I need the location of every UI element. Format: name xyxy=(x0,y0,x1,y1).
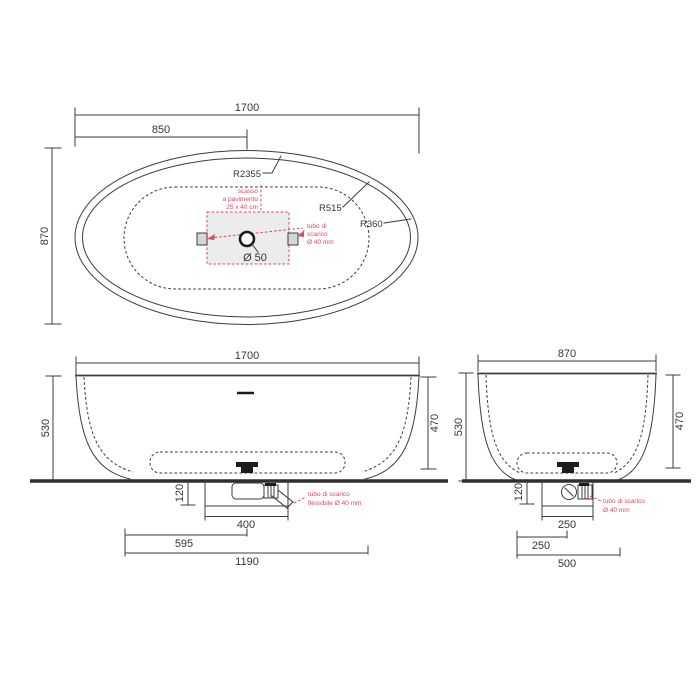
radius-mid-label: R515 xyxy=(319,203,342,214)
top-halfwidth-label: 850 xyxy=(152,124,170,136)
front-wall-left xyxy=(76,376,130,479)
front-wall-right xyxy=(365,376,419,479)
outlet-clamp xyxy=(265,483,276,486)
side-height-dimension: 530 xyxy=(453,373,473,481)
recess-note-line3: 25 x 40 cm xyxy=(226,204,258,211)
side-width-label: 870 xyxy=(558,348,576,360)
side-recessdepth-label: 120 xyxy=(513,483,525,501)
recess-note-line2: a pavimento xyxy=(223,196,259,203)
front-drain-note: tubo di scarico flessibile Ø 40 mm xyxy=(308,491,361,507)
side-drainoffset-label: 250 xyxy=(532,540,550,552)
front-recesswidth-dimension: 400 xyxy=(205,506,288,531)
radius-corner-label: R360 xyxy=(360,219,383,230)
drain-hole-label: Ø 50 xyxy=(243,252,267,264)
side-drainoffset-dimension: 250 xyxy=(517,531,567,558)
front-recessdepth-dimension: 120 xyxy=(174,481,195,505)
side-recesswidth-label: 250 xyxy=(558,519,576,531)
bathtub-technical-drawing: 1700 850 870 scasso a pavimento 25 x 40 … xyxy=(0,0,700,700)
recess-note-line1: scasso xyxy=(238,188,259,195)
side-height-label: 530 xyxy=(453,418,465,436)
flex-pipe-top xyxy=(278,490,293,502)
front-innerwall-left xyxy=(84,377,133,472)
top-drain-note: tubo di scarico Ø 40 mm xyxy=(307,223,334,246)
front-height-dimension: 530 xyxy=(40,376,61,481)
front-basewidth-dimension: 1190 xyxy=(125,546,368,568)
side-recessdepth-dimension: 120 xyxy=(513,481,534,504)
top-drain-note-line2: scarico xyxy=(307,231,328,238)
top-depth-label: 870 xyxy=(39,227,51,245)
front-drain-assembly xyxy=(232,462,293,508)
drain-cap xyxy=(236,462,258,467)
side-innerdepth-dimension: 470 xyxy=(666,375,686,468)
drain-stem xyxy=(241,467,253,473)
top-halfwidth-dimension: 850 xyxy=(75,124,247,149)
front-innerwall-right xyxy=(362,377,411,472)
front-height-label: 530 xyxy=(40,419,52,437)
siphon-body xyxy=(232,483,264,499)
side-view: 870 530 470 120 xyxy=(453,348,691,570)
top-depth-dimension: 870 xyxy=(39,148,61,324)
front-drainoffset-dimension: 595 xyxy=(125,529,247,556)
top-width-label: 1700 xyxy=(235,102,259,114)
top-view: 1700 850 870 scasso a pavimento 25 x 40 … xyxy=(39,102,419,325)
side-drain-note-line2: Ø 40 mm xyxy=(603,507,630,514)
radius-callout-mid: R515 xyxy=(319,182,369,214)
front-recesswidth-label: 400 xyxy=(237,519,255,531)
radius-outer-label: R2355 xyxy=(233,169,261,180)
front-basewidth-label: 1190 xyxy=(235,556,259,568)
recess-note: scasso a pavimento 25 x 40 cm xyxy=(223,188,259,211)
front-innerdepth-label: 470 xyxy=(429,414,441,432)
right-drain-connector xyxy=(288,233,298,245)
front-recessdepth-label: 120 xyxy=(174,484,186,502)
side-wall-right xyxy=(618,374,656,480)
front-width-label: 1700 xyxy=(235,350,259,362)
side-drain-note-line1: tubo di scarico xyxy=(603,498,645,505)
top-drain-note-line3: Ø 40 mm xyxy=(307,239,334,246)
drawing-canvas: 1700 850 870 scasso a pavimento 25 x 40 … xyxy=(0,0,700,700)
side-outlet-clamp xyxy=(579,483,589,486)
side-drain-cap xyxy=(557,462,579,467)
front-innerdepth-dimension: 470 xyxy=(421,377,441,469)
left-drain-connector xyxy=(197,233,207,245)
front-drainoffset-label: 595 xyxy=(175,538,193,550)
front-width-dimension: 1700 xyxy=(76,350,419,374)
side-basewidth-label: 500 xyxy=(558,558,576,570)
top-drain-note-line1: tubo di xyxy=(307,223,327,230)
side-innerwall-right xyxy=(614,375,648,473)
side-innerdepth-label: 470 xyxy=(674,412,686,430)
front-drain-note-leader xyxy=(294,497,306,503)
radius-callout-corner: R360 xyxy=(360,219,411,230)
front-drain-note-line2: flessibile Ø 40 mm xyxy=(308,500,361,507)
side-drain-stem xyxy=(562,467,574,473)
side-drain-note: tubo di scarico Ø 40 mm xyxy=(603,498,645,514)
side-wall-left xyxy=(478,374,516,480)
front-view: 1700 530 470 120 xyxy=(30,350,448,568)
front-drain-note-line1: tubo di scarico xyxy=(308,491,350,498)
side-innerwall-left xyxy=(486,375,520,473)
radius-callout-outer: R2355 xyxy=(233,156,281,180)
side-recesswidth-dimension: 250 xyxy=(542,506,593,531)
side-width-dimension: 870 xyxy=(478,348,656,371)
